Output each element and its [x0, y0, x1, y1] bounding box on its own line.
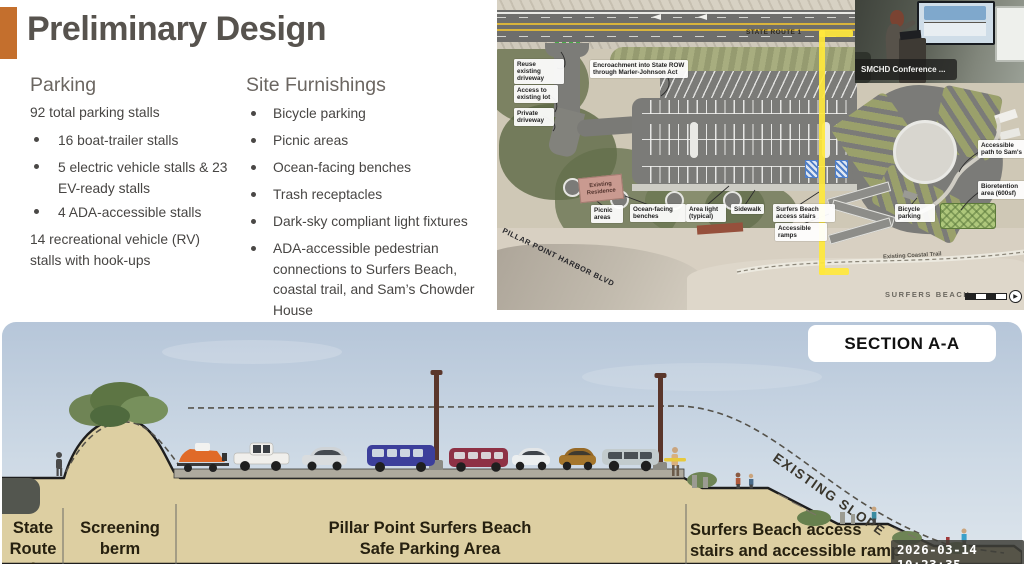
- page-title: Preliminary Design: [27, 10, 326, 49]
- zone-label-safe-parking-area: Pillar Point Surfers BeachSafe Parking A…: [280, 518, 580, 559]
- plan-label-private-driveway: Private driveway: [514, 108, 554, 126]
- slide-root: Preliminary Design Parking 92 total park…: [0, 0, 1024, 564]
- parking-bullet: 4 ADA-accessible stalls: [58, 203, 238, 224]
- brown-car-vehicle: [559, 448, 596, 470]
- bullet-dot: [34, 209, 39, 214]
- parking-intro: 92 total parking stalls: [30, 103, 230, 124]
- parking-bullet: 5 electric vehicle stalls & 23 EV-ready …: [58, 158, 236, 199]
- pedestrian-figure: [736, 473, 741, 489]
- furnishings-bullet: Ocean-facing benches: [273, 158, 485, 179]
- furnishings-bullet: Bicycle parking: [273, 104, 485, 125]
- parking-bullet: 16 boat-trailer stalls: [58, 131, 238, 152]
- scale-bar: [965, 293, 1007, 300]
- plan-label-beach-stairs: Surfers Beach access stairs: [773, 204, 835, 222]
- bullet-dot: [251, 165, 256, 170]
- surfers-beach-label: SURFERS BEACH: [885, 290, 970, 299]
- pedestrian-figure: [749, 474, 754, 489]
- north-arrow-icon: ▶: [1009, 290, 1022, 303]
- wall-tv: [917, 1, 995, 45]
- bullet-dot: [251, 111, 256, 116]
- blue-van-vehicle: [367, 445, 435, 472]
- title-accent-bar: [0, 7, 17, 59]
- plan-label-reuse-driveway: Reuse existing driveway: [514, 59, 564, 84]
- white-car-vehicle: [512, 448, 550, 470]
- furnishings-heading: Site Furnishings: [246, 74, 386, 97]
- zone-label-state-route-1: StateRoute 1: [4, 518, 62, 564]
- berm-vegetation: [69, 382, 168, 427]
- section-badge: SECTION A-A: [808, 325, 996, 362]
- recording-timestamp: 2026-03-14 10:23:35: [891, 540, 1024, 564]
- webcam-caption: SMCHD Conference ...: [855, 59, 957, 80]
- plan-label-bioretention: Bioretention area (600sf): [978, 181, 1024, 199]
- furnishings-bullet: Picnic areas: [273, 131, 485, 152]
- plan-label-encroachment: Encroachment into State ROW through Marl…: [590, 60, 688, 78]
- section-highlight-bracket: [819, 30, 853, 37]
- suv-vehicle: [602, 449, 659, 471]
- existing-residence: Existing Residence: [578, 174, 624, 203]
- bullet-dot: [251, 246, 256, 251]
- plan-label-sidewalk: Sidewalk: [731, 204, 764, 214]
- boat-trailer-vehicle: [177, 443, 229, 472]
- pedestrian-figure: [56, 452, 62, 476]
- parking-heading: Parking: [30, 74, 96, 97]
- bullet-dot: [34, 137, 39, 142]
- webcam-overlay: SMCHD Conference ...: [855, 0, 1024, 83]
- plan-label-path-to-sams: Accessible path to Sam's: [978, 140, 1024, 158]
- whiteboard: [995, 6, 1024, 62]
- plan-label-access-lot: Access to existing lot: [514, 85, 558, 103]
- sedan-vehicle: [302, 447, 347, 471]
- plan-label-accessible-ramps: Accessible ramps: [775, 223, 827, 241]
- bullet-dot: [251, 138, 256, 143]
- plan-label-area-light: Area light (typical): [686, 204, 726, 222]
- furnishings-bullet: Trash receptacles: [273, 185, 485, 206]
- furnishings-bullet: Dark-sky compliant light fixtures: [273, 212, 485, 233]
- bullet-dot: [34, 164, 39, 169]
- bullet-dot: [251, 192, 256, 197]
- parking-outro: 14 recreational vehicle (RV) stalls with…: [30, 230, 228, 271]
- plan-label-ocean-benches: Ocean-facing benches: [630, 204, 686, 222]
- furnishings-bullet: ADA-accessible pedestrian connections to…: [273, 239, 487, 322]
- plan-label-picnic-areas: Picnic areas: [591, 205, 623, 223]
- bullet-dot: [251, 219, 256, 224]
- maroon-van-vehicle: [449, 448, 508, 472]
- tv-slide-ground: [924, 22, 986, 36]
- tv-slide-sky: [924, 6, 986, 20]
- zone-label-screening-berm: Screeningberm: [70, 518, 170, 559]
- plan-label-bicycle-parking: Bicycle parking: [895, 204, 935, 222]
- section-highlight-bracket: [819, 268, 849, 275]
- pickup-truck-vehicle: [234, 443, 289, 471]
